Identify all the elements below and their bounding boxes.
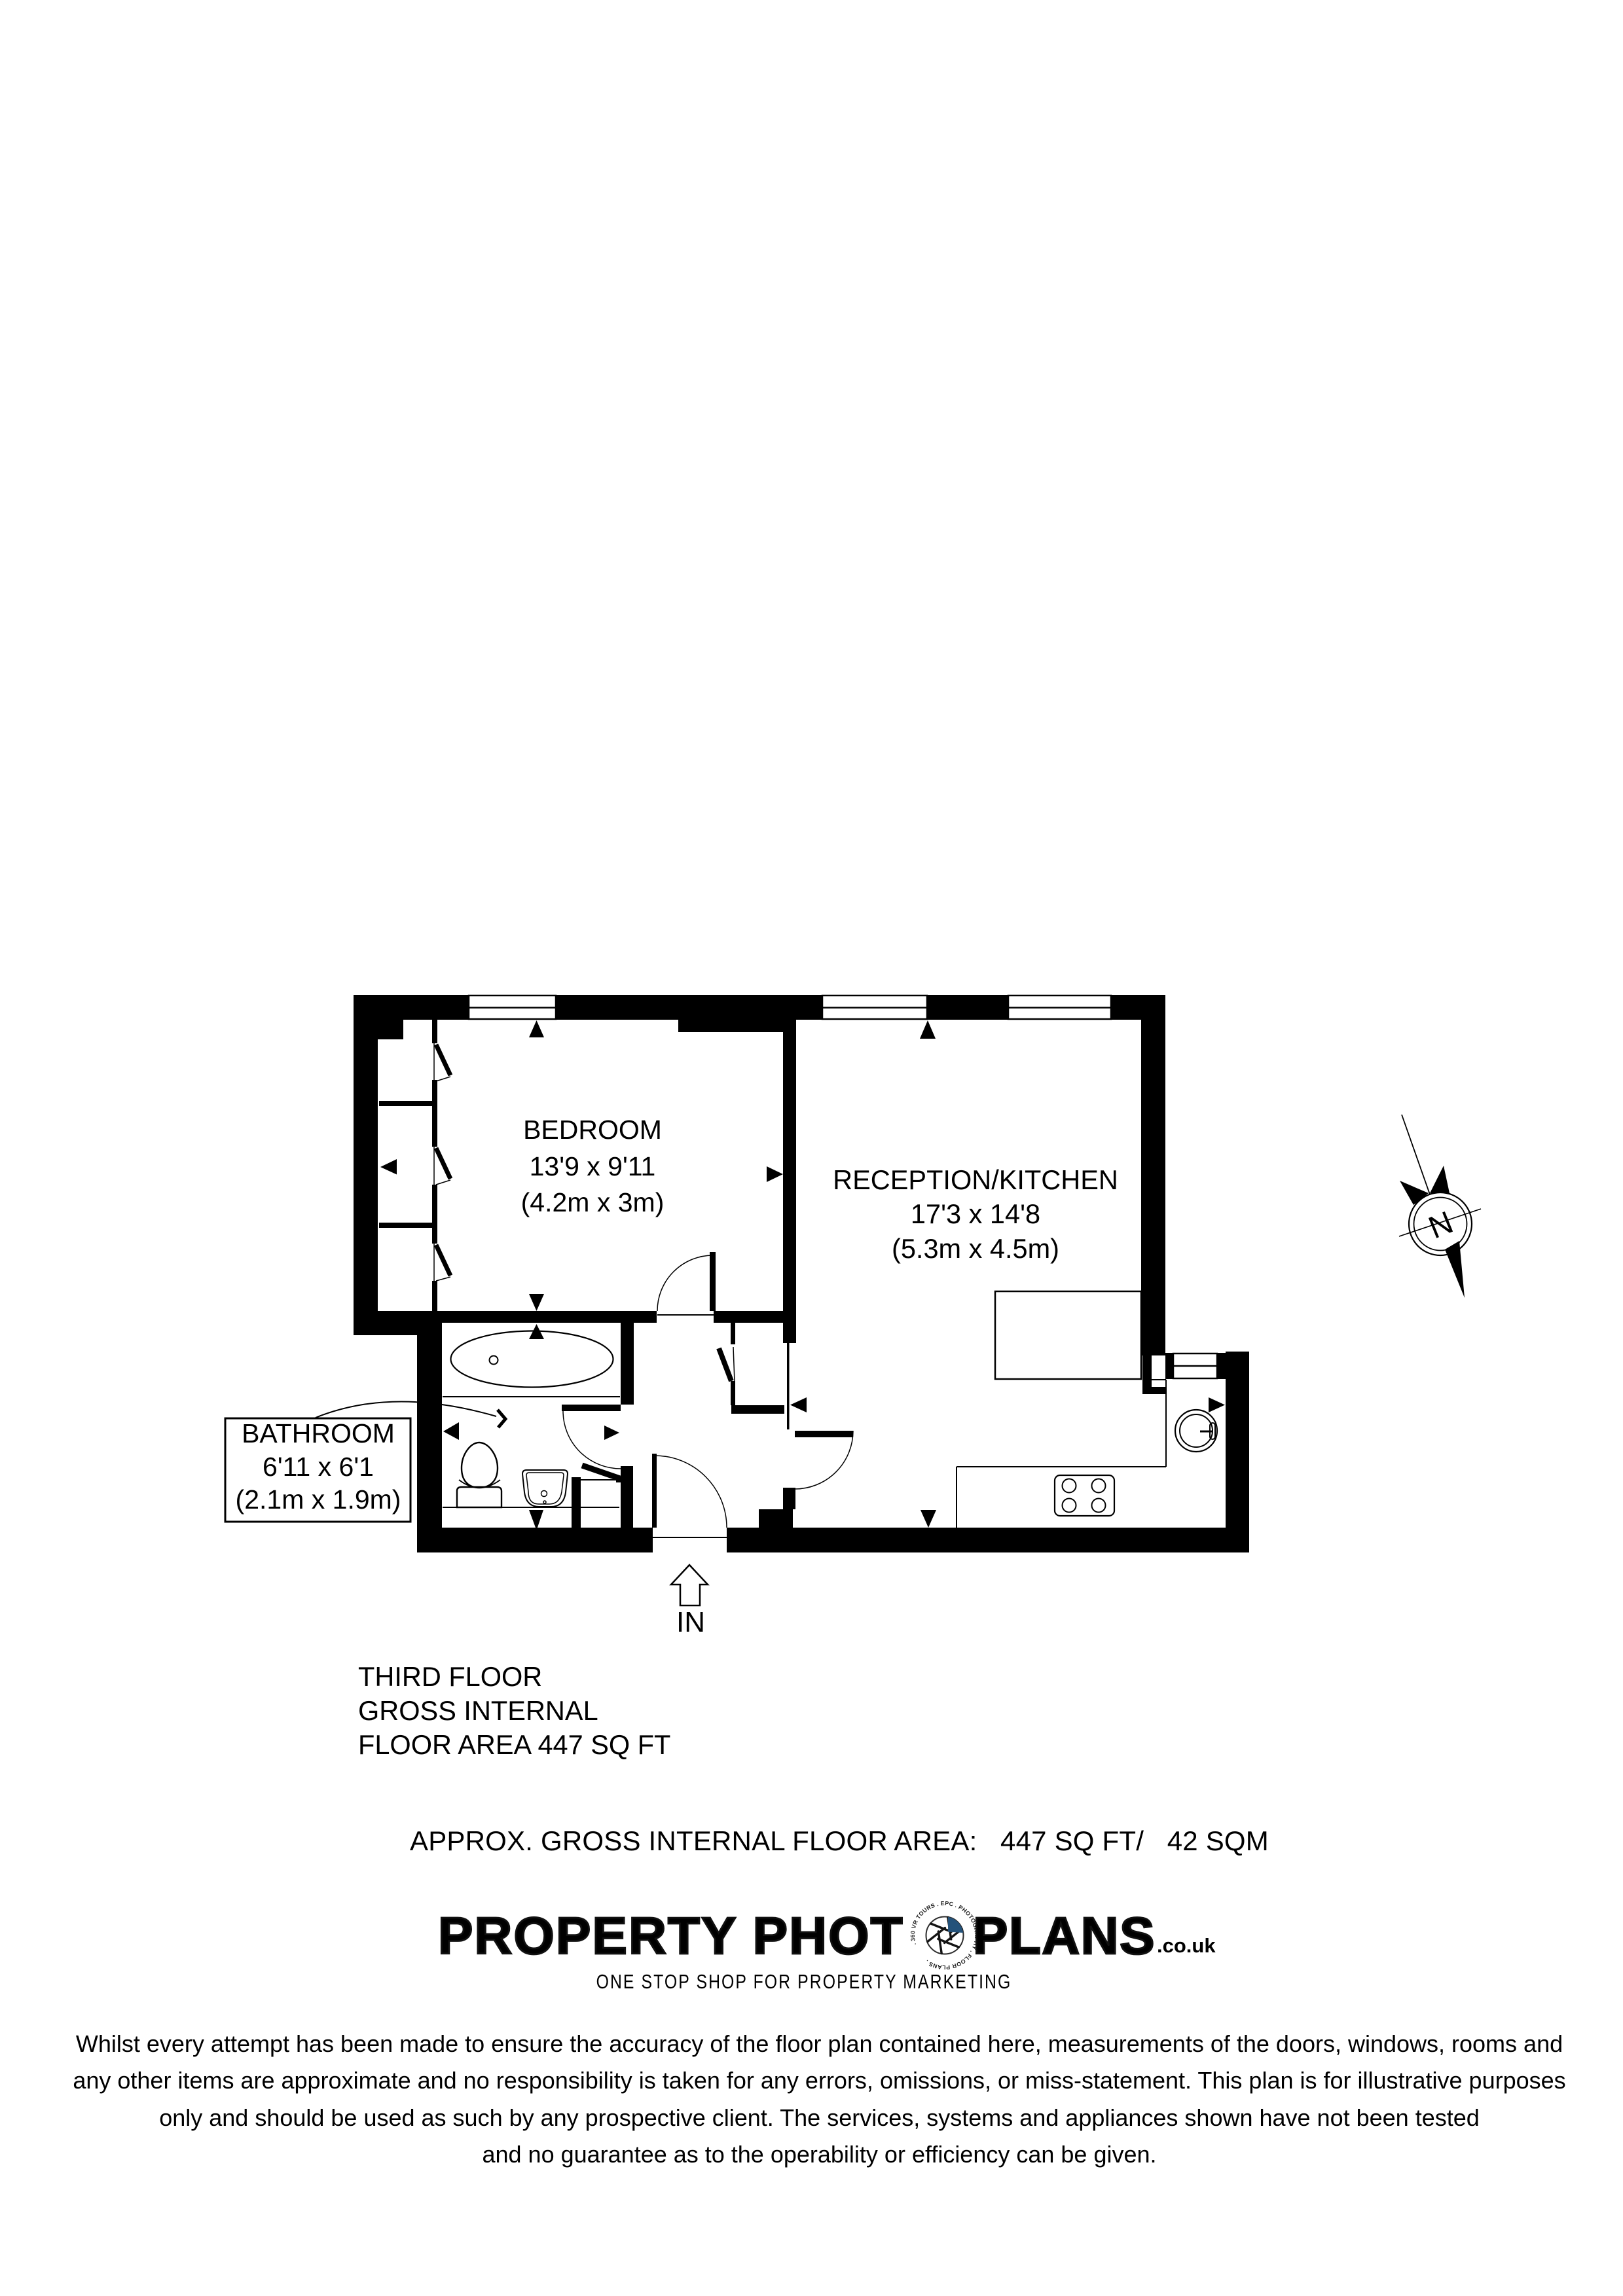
svg-text:. 360 VR TOURS . EPC . PHOTOGR: . 360 VR TOURS . EPC . PHOTOGRAPHY . FLO…: [909, 1900, 980, 1971]
